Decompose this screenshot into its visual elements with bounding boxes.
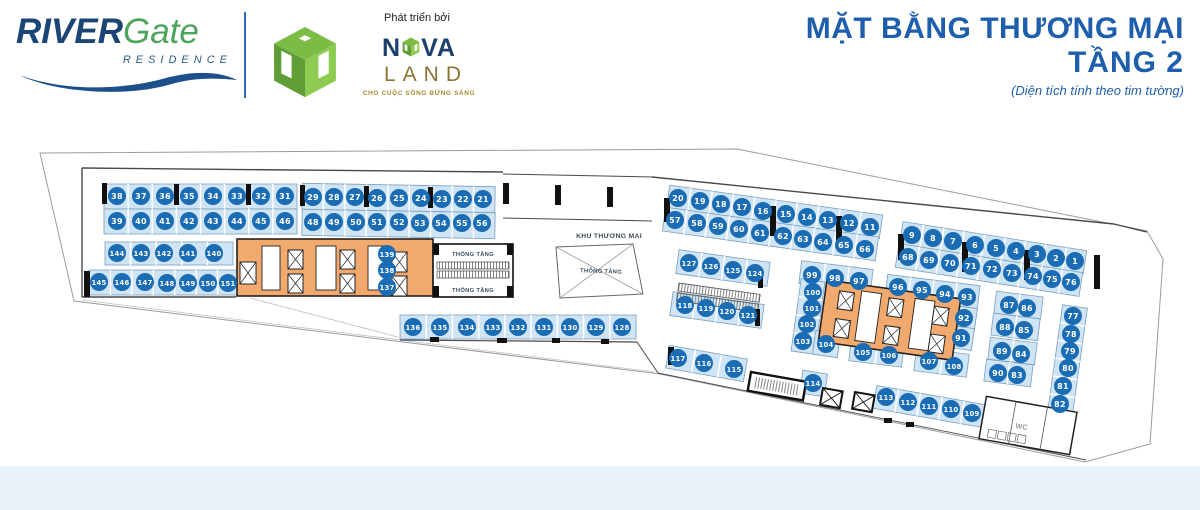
unit-number: 42: [183, 217, 195, 226]
unit-number: 53: [414, 219, 426, 228]
unit-number: 74: [1027, 272, 1039, 281]
unit: 97: [850, 272, 868, 290]
unit-number: 81: [1057, 382, 1069, 391]
unit-number: 25: [393, 194, 405, 203]
unit: 141: [179, 244, 197, 262]
unit: 24: [412, 189, 430, 207]
unit-number: 85: [1018, 326, 1030, 335]
column-mark: [246, 184, 251, 205]
unit: 37: [132, 187, 150, 205]
elevator-small: [852, 392, 875, 412]
unit-number: 36: [159, 192, 171, 201]
unit-number: 66: [859, 245, 871, 254]
unit: 150: [199, 274, 217, 292]
waterfront-band: [0, 466, 1200, 510]
unit-number: 128: [614, 324, 629, 332]
unit: 6: [966, 236, 984, 254]
unit-number: 51: [371, 218, 383, 227]
unit: 93: [958, 288, 976, 306]
unit-number: 17: [736, 203, 748, 212]
unit: 81: [1054, 377, 1072, 395]
unit-number: 55: [456, 219, 468, 228]
unit: 2: [1047, 249, 1065, 267]
unit: 134: [458, 318, 476, 336]
unit-number: 31: [279, 192, 291, 201]
unit: 3: [1028, 245, 1046, 263]
unit-number: 127: [681, 260, 696, 268]
unit: 90: [989, 364, 1007, 382]
unit-number: 109: [964, 410, 979, 418]
unit: 34: [204, 187, 222, 205]
unit-number: 139: [379, 251, 394, 259]
unit: 45: [252, 212, 270, 230]
unit: 80: [1059, 359, 1077, 377]
unit-number: 89: [996, 347, 1008, 356]
unit-number: 107: [921, 358, 936, 366]
unit-number: 136: [405, 324, 420, 332]
column-mark: [503, 183, 509, 204]
unit-number: 91: [955, 334, 967, 343]
unit-number: 131: [536, 324, 551, 332]
unit: 140: [205, 244, 223, 262]
unit-number: 140: [206, 250, 221, 258]
unit-number: 26: [371, 194, 383, 203]
unit-number: 130: [562, 324, 577, 332]
unit-number: 83: [1011, 371, 1023, 380]
floor-plan-canvas: WCKHU THƯƠNG MẠITHÔNG TẦNGTHÔNG TẦNGTHÔN…: [0, 0, 1200, 510]
unit: 58: [688, 214, 706, 232]
column-mark: [102, 183, 107, 204]
unit-number: 18: [715, 200, 727, 209]
unit: 16: [754, 202, 772, 220]
page: RIVERGate RESIDENCE Phát triển bởi NVA L…: [0, 0, 1200, 510]
unit: 96: [889, 278, 907, 296]
service-core: [237, 239, 433, 296]
unit-number: 37: [135, 192, 147, 201]
unit-number: 125: [725, 267, 740, 275]
unit-number: 52: [393, 218, 405, 227]
unit-number: 151: [220, 280, 235, 288]
core-room: [316, 246, 336, 290]
unit: 51: [368, 213, 386, 231]
unit-number: 40: [135, 217, 147, 226]
unit-number: 88: [999, 323, 1011, 332]
unit-number: 102: [799, 321, 814, 329]
unit: 102: [798, 315, 816, 333]
unit: 118: [676, 296, 694, 314]
unit-number: 124: [747, 270, 762, 278]
unit-number: 101: [804, 305, 819, 313]
column-mark: [1094, 255, 1100, 289]
unit-number: 100: [805, 289, 820, 297]
unit-number: 46: [279, 217, 291, 226]
unit: 57: [666, 211, 684, 229]
column-mark: [433, 244, 439, 255]
unit: 145: [90, 273, 108, 291]
plan-label: THÔNG TẦNG: [452, 286, 494, 294]
unit: 126: [702, 257, 720, 275]
unit: 29: [304, 188, 322, 206]
core-room: [262, 246, 280, 290]
unit: 31: [276, 187, 294, 205]
unit: 92: [955, 309, 973, 327]
unit: 138: [378, 261, 396, 279]
unit-number: 145: [91, 279, 106, 287]
unit-number: 104: [818, 341, 833, 349]
unit-number: 1: [1072, 257, 1078, 266]
unit-number: 19: [694, 197, 706, 206]
escalator-band: [437, 262, 509, 269]
unit-number: 78: [1065, 330, 1077, 339]
unit-number: 103: [795, 338, 810, 346]
unit-number: 112: [900, 399, 915, 407]
column-mark: [430, 337, 439, 342]
unit: 137: [378, 278, 396, 296]
unit-number: 77: [1067, 312, 1079, 321]
unit: 71: [962, 257, 980, 275]
unit-number: 141: [180, 250, 195, 258]
unit: 17: [733, 198, 751, 216]
unit: 125: [724, 261, 742, 279]
unit-number: 96: [892, 283, 904, 292]
unit: 62: [774, 227, 792, 245]
unit-number: 3: [1034, 250, 1040, 259]
unit-number: 45: [255, 217, 267, 226]
unit: 120: [718, 302, 736, 320]
unit-number: 38: [111, 192, 123, 201]
unit-number: 115: [726, 366, 741, 374]
unit-number: 105: [855, 349, 870, 357]
unit-number: 69: [923, 256, 935, 265]
unit-number: 138: [379, 267, 394, 275]
unit: 19: [691, 192, 709, 210]
unit: 52: [390, 213, 408, 231]
unit-number: 28: [328, 193, 340, 202]
unit-number: 72: [986, 265, 998, 274]
unit-number: 76: [1065, 278, 1077, 287]
unit: 73: [1003, 264, 1021, 282]
unit-number: 9: [909, 231, 915, 240]
unit-number: 116: [696, 360, 711, 368]
unit: 56: [473, 214, 491, 232]
unit-number: 73: [1006, 269, 1018, 278]
unit: 121: [739, 306, 757, 324]
unit-number: 75: [1046, 275, 1058, 284]
unit: 69: [920, 251, 938, 269]
unit-number: 120: [719, 308, 734, 316]
unit-number: 146: [114, 279, 129, 287]
unit-number: 7: [950, 237, 956, 246]
unit-number: 133: [485, 324, 500, 332]
unit: 77: [1064, 307, 1082, 325]
unit-number: 15: [780, 210, 792, 219]
unit-number: 39: [111, 217, 123, 226]
unit: 35: [180, 187, 198, 205]
unit: 50: [347, 213, 365, 231]
unit-number: 110: [943, 406, 958, 414]
unit: 54: [432, 214, 450, 232]
unit: 70: [941, 254, 959, 272]
unit: 109: [963, 404, 981, 422]
column-mark: [507, 244, 513, 255]
unit: 41: [156, 212, 174, 230]
unit-number: 134: [459, 324, 474, 332]
unit: 86: [1018, 299, 1036, 317]
unit: 36: [156, 187, 174, 205]
unit-number: 82: [1054, 400, 1066, 409]
unit: 144: [108, 244, 126, 262]
floor-plan: WCKHU THƯƠNG MẠITHÔNG TẦNGTHÔNG TẦNGTHÔN…: [0, 0, 1200, 510]
unit: 98: [826, 269, 844, 287]
unit-number: 92: [958, 314, 970, 323]
unit: 127: [680, 254, 698, 272]
unit: 91: [952, 329, 970, 347]
unit-number: 129: [588, 324, 603, 332]
column-mark: [601, 339, 609, 344]
unit: 133: [484, 318, 502, 336]
unit-number: 70: [944, 259, 956, 268]
unit-number: 84: [1015, 350, 1027, 359]
unit-number: 13: [822, 216, 834, 225]
column-mark: [555, 185, 561, 205]
unit: 32: [252, 187, 270, 205]
unit-number: 34: [207, 192, 219, 201]
unit-number: 137: [379, 284, 394, 292]
unit: 72: [983, 260, 1001, 278]
unit: 65: [835, 236, 853, 254]
unit-number: 147: [137, 279, 152, 287]
unit: 148: [158, 274, 176, 292]
unit: 28: [325, 188, 343, 206]
unit-number: 98: [829, 274, 841, 283]
unit-number: 79: [1064, 347, 1076, 356]
unit: 104: [817, 335, 835, 353]
unit: 105: [854, 343, 872, 361]
unit: 44: [228, 212, 246, 230]
unit: 27: [346, 188, 364, 206]
unit: 112: [899, 393, 917, 411]
elevator-small: [820, 388, 843, 408]
unit: 135: [431, 318, 449, 336]
unit-number: 119: [698, 305, 713, 313]
unit: 13: [819, 211, 837, 229]
unit-number: 64: [817, 238, 829, 247]
unit-number: 32: [255, 192, 267, 201]
unit: 40: [132, 212, 150, 230]
unit-number: 142: [156, 250, 171, 258]
unit-number: 20: [672, 194, 684, 203]
unit-number: 93: [961, 293, 973, 302]
unit: 142: [155, 244, 173, 262]
column-mark: [433, 286, 439, 297]
unit: 108: [945, 357, 963, 375]
unit: 33: [228, 187, 246, 205]
plan-label: KHU THƯƠNG MẠI: [576, 233, 642, 240]
unit-number: 87: [1003, 301, 1015, 310]
unit: 4: [1007, 242, 1025, 260]
unit-number: 106: [881, 352, 896, 360]
unit-number: 80: [1062, 364, 1074, 373]
unit-number: 99: [806, 271, 818, 280]
unit-number: 63: [797, 235, 809, 244]
column-mark: [174, 184, 179, 205]
plan-label: THÔNG TẦNG: [452, 250, 494, 258]
unit: 64: [814, 233, 832, 251]
column-mark: [607, 187, 613, 207]
unit-number: 94: [939, 290, 951, 299]
unit-number: 59: [712, 222, 724, 231]
unit-number: 54: [435, 219, 447, 228]
unit-number: 29: [307, 193, 319, 202]
unit: 128: [613, 318, 631, 336]
unit: 22: [454, 190, 472, 208]
unit: 49: [325, 213, 343, 231]
unit: 149: [179, 274, 197, 292]
unit-number: 95: [916, 286, 928, 295]
unit-number: 144: [109, 250, 124, 258]
unit: 43: [204, 212, 222, 230]
unit: 75: [1043, 270, 1061, 288]
unit: 9: [903, 226, 921, 244]
column-mark: [552, 338, 560, 343]
unit: 11: [861, 218, 879, 236]
unit-number: 35: [183, 192, 195, 201]
unit: 132: [509, 318, 527, 336]
unit-number: 135: [432, 324, 447, 332]
unit: 136: [404, 318, 422, 336]
unit: 25: [390, 189, 408, 207]
unit: 95: [913, 281, 931, 299]
unit-number: 86: [1021, 304, 1033, 313]
unit: 88: [996, 318, 1014, 336]
unit: 66: [856, 240, 874, 258]
unit: 82: [1051, 395, 1069, 413]
unit: 84: [1012, 345, 1030, 363]
unit-number: 62: [777, 232, 789, 241]
unit-number: 16: [757, 207, 769, 216]
unit: 89: [993, 342, 1011, 360]
unit: 143: [132, 244, 150, 262]
unit-number: 150: [200, 280, 215, 288]
unit-number: 33: [231, 192, 243, 201]
unit: 130: [561, 318, 579, 336]
unit: 116: [695, 354, 713, 372]
unit-number: 49: [328, 218, 340, 227]
unit-number: 65: [838, 241, 850, 250]
unit: 60: [730, 220, 748, 238]
unit-number: 118: [677, 302, 692, 310]
unit: 103: [794, 332, 812, 350]
unit: 117: [669, 349, 687, 367]
unit-number: 41: [159, 217, 171, 226]
unit-number: 60: [733, 225, 745, 234]
unit: 106: [880, 346, 898, 364]
unit-number: 132: [510, 324, 525, 332]
unit: 61: [751, 224, 769, 242]
column-mark: [497, 338, 507, 343]
unit: 7: [944, 232, 962, 250]
unit: 131: [535, 318, 553, 336]
unit-number: 108: [946, 363, 961, 371]
unit: 83: [1008, 366, 1026, 384]
unit: 59: [709, 217, 727, 235]
unit: 1: [1066, 252, 1084, 270]
unit-number: 58: [691, 219, 703, 228]
unit: 23: [433, 190, 451, 208]
unit-number: 44: [231, 217, 243, 226]
unit-number: 56: [476, 219, 488, 228]
unit: 107: [920, 352, 938, 370]
column-mark: [507, 286, 513, 297]
unit: 68: [899, 248, 917, 266]
unit-number: 143: [133, 250, 148, 258]
unit-number: 43: [207, 217, 219, 226]
unit: 100: [804, 283, 822, 301]
unit: 94: [936, 285, 954, 303]
unit-number: 121: [740, 312, 755, 320]
unit: 87: [1000, 296, 1018, 314]
unit: 85: [1015, 321, 1033, 339]
unit: 139: [378, 245, 396, 263]
unit-number: 117: [670, 355, 685, 363]
unit: 63: [794, 230, 812, 248]
unit-number: 111: [921, 403, 936, 411]
unit: 79: [1061, 342, 1079, 360]
unit-number: 57: [669, 216, 681, 225]
unit: 124: [746, 264, 764, 282]
unit-number: 61: [754, 229, 766, 238]
unit: 42: [180, 212, 198, 230]
unit-number: 8: [930, 234, 936, 243]
unit-number: 48: [307, 218, 319, 227]
column-mark: [884, 418, 892, 423]
unit: 26: [368, 189, 386, 207]
unit: 78: [1062, 325, 1080, 343]
unit: 5: [987, 239, 1005, 257]
column-mark: [906, 422, 914, 427]
unit-number: 50: [350, 218, 362, 227]
unit: 99: [803, 266, 821, 284]
unit: 74: [1024, 267, 1042, 285]
unit: 119: [697, 299, 715, 317]
unit-number: 71: [965, 262, 977, 271]
unit-number: 5: [993, 244, 999, 253]
unit-number: 22: [457, 195, 469, 204]
unit-number: 24: [415, 194, 427, 203]
unit: 114: [804, 374, 822, 392]
unit-number: 149: [180, 280, 195, 288]
unit: 14: [798, 208, 816, 226]
unit-number: 126: [703, 263, 718, 271]
unit: 129: [587, 318, 605, 336]
unit-number: 6: [972, 241, 978, 250]
unit: 147: [136, 273, 154, 291]
unit: 151: [219, 274, 237, 292]
unit-number: 12: [843, 219, 855, 228]
unit-number: 148: [159, 280, 174, 288]
unit-number: 11: [864, 223, 876, 232]
unit: 101: [803, 299, 821, 317]
unit-number: 21: [477, 195, 489, 204]
unit-number: 27: [349, 193, 361, 202]
unit: 12: [840, 214, 858, 232]
unit-number: 68: [902, 253, 914, 262]
column-mark: [84, 271, 90, 297]
unit-number: 23: [436, 195, 448, 204]
unit: 48: [304, 213, 322, 231]
escalator-band: [437, 271, 509, 278]
unit-number: 113: [878, 394, 893, 402]
